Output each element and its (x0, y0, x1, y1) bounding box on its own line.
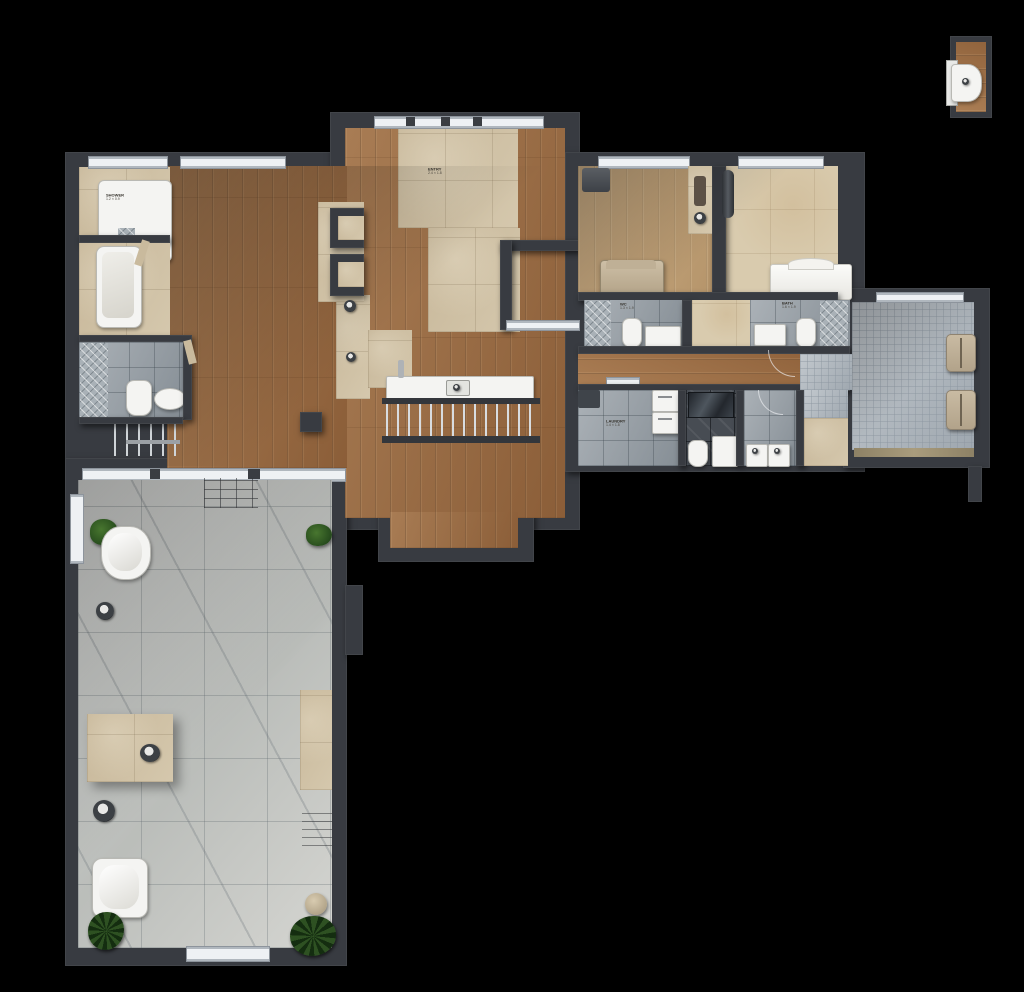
terrace-step (854, 448, 974, 457)
decor-bowl (346, 352, 356, 362)
stool (305, 893, 327, 915)
stone-feature-panel (688, 392, 734, 418)
sink-faucet-dot (752, 448, 758, 454)
sink-faucet-dot (774, 448, 780, 454)
washer-control-line (658, 396, 672, 398)
wall-divider (796, 390, 804, 466)
wall-divider (578, 346, 850, 354)
toilet (126, 380, 152, 416)
side-steps (302, 812, 332, 846)
entry-stone-panel (398, 128, 518, 228)
entry-sliding-door (374, 116, 544, 129)
railing-balusters (386, 404, 536, 437)
room-label-entry: ENTRY2.4 × 1.8 (428, 167, 442, 176)
terrace-floor-inlet (800, 354, 852, 390)
wall-divider (678, 390, 686, 466)
room-label-ensuite-right: BATH1.6 × 1.9 (782, 301, 796, 310)
landing-wall-top (500, 240, 580, 251)
wall-stub-living (300, 412, 322, 432)
laundry-counter (578, 390, 600, 408)
stone-side-strip (300, 690, 332, 790)
washroom-sink-1 (746, 444, 768, 467)
window-spa-left (70, 494, 84, 564)
central-lower-floor (390, 512, 518, 548)
round-sink (140, 744, 160, 762)
sink-drain (453, 384, 460, 391)
ensuite-lobby-floor (692, 300, 750, 348)
dresser (582, 168, 610, 192)
wall-divider (736, 390, 744, 466)
washer (652, 390, 680, 412)
ensuite-left-shower-mat (585, 301, 611, 347)
wall-niche-upper-inner (338, 216, 364, 240)
washroom-sink-2 (768, 444, 790, 467)
entry-door-handle (473, 117, 482, 126)
ensuite-right-shower-mat (820, 301, 848, 347)
landing-wall-left (500, 240, 512, 330)
window-shower-room (88, 156, 168, 169)
terrace-window (876, 292, 964, 303)
window-bedroom-left (598, 156, 690, 169)
terrace-floor-inlet-2 (804, 390, 848, 418)
wardrobe-knob (694, 212, 706, 224)
wc-vanity (712, 436, 738, 467)
shower-mat (80, 343, 108, 417)
room-label-ensuite-left: WC1.3 × 1.9 (620, 302, 634, 311)
lounge-chair-1 (946, 334, 976, 372)
entry-door-handle (406, 117, 415, 126)
wall-knob (96, 602, 114, 620)
floor-plan-canvas: ENTRY2.4 × 1.8 SHOWER1.2 × 0.9 (0, 0, 1024, 992)
entry-door-handle (441, 117, 450, 126)
faucet (398, 360, 404, 378)
bidet (154, 388, 186, 410)
soaking-tub-basin (99, 865, 139, 909)
spa-bottom-door (186, 946, 270, 962)
ensuite-right-toilet (796, 318, 816, 348)
decor-bowl (344, 300, 356, 312)
stair-handrail (126, 440, 180, 444)
wall-divider (79, 335, 192, 342)
terrace-wall-stub (968, 466, 982, 502)
wall-divider (79, 417, 183, 424)
ensuite-left-toilet (622, 318, 642, 348)
wardrobe-items (694, 176, 706, 206)
ensuite-left-vanity (645, 326, 681, 348)
dryer-control-line (658, 418, 672, 420)
module-drain-dot (962, 78, 969, 85)
room-label-laundry: LAUNDRY1.4 × 1.8 (606, 419, 625, 428)
door-clip (150, 469, 160, 479)
wall-divider (79, 235, 170, 243)
stair-outline-grid (204, 478, 258, 508)
lounge-chair-2 (946, 390, 976, 430)
sauna-bench (804, 418, 848, 466)
ensuite-right-vanity (754, 324, 786, 346)
freestanding-tub-basin (108, 533, 142, 571)
bed-left-pillow (606, 260, 656, 269)
railing-bottom-rail (382, 436, 540, 443)
landing-threshold (506, 320, 580, 331)
exterior-wall-stub (345, 585, 363, 655)
wall-niche-lower-inner (338, 262, 364, 287)
stone-table (87, 714, 173, 782)
room-label-shower: SHOWER1.2 × 0.9 (106, 193, 124, 202)
wall-knob (93, 800, 115, 822)
radiator (722, 170, 734, 218)
wall-divider (682, 300, 692, 348)
bed-right-headboard (788, 258, 834, 270)
window-bedroom-right (738, 156, 824, 169)
dryer (652, 412, 680, 434)
bathtub-basin (102, 252, 134, 318)
window-living (180, 156, 286, 169)
wc-toilet (688, 440, 708, 467)
